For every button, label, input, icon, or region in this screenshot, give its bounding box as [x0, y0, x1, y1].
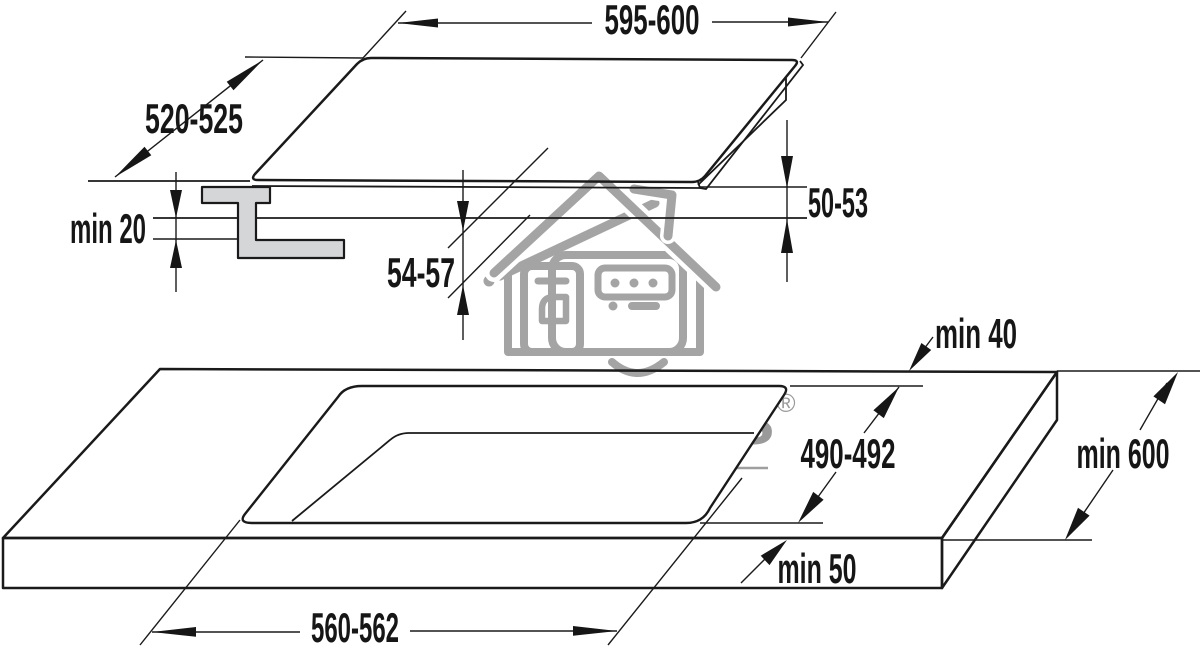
dim-label-cutout-width: 560-562: [311, 604, 399, 651]
dim-clearance-below: min 20: [70, 172, 182, 292]
hob-glass-top: [253, 58, 797, 182]
dim-cutout-to-back-edge: min 40: [909, 310, 1017, 371]
dim-cutout-to-front-edge: min 50: [741, 540, 857, 592]
dim-label-cutout-depth: 490-492: [801, 430, 896, 477]
oven-knob-2: [630, 279, 639, 288]
dim-hob-width: 595-600: [363, 0, 836, 58]
oven-knob-1: [611, 279, 620, 288]
dim-label-cutout-to-front: min 50: [778, 545, 857, 592]
worktop-cutout: [243, 386, 786, 523]
oven-dot: [609, 302, 618, 311]
dim-hob-height-below-worktop: 50-53: [781, 120, 868, 282]
dim-label-cutout-to-back: min 40: [935, 310, 1017, 357]
dim-label-clearance-below: min 20: [70, 205, 146, 252]
dim-label-hob-height-total: 54-57: [387, 249, 455, 296]
dim-label-hob-height-below: 50-53: [808, 179, 868, 226]
hob-section: 595-600 520-525 min 20 54-57: [70, 0, 868, 340]
mounting-bracket: [202, 187, 344, 258]
dim-label-worktop-min-depth: min 600: [1077, 430, 1170, 477]
house-logo-icon: [484, 176, 717, 373]
dim-hob-depth: 520-525: [115, 57, 363, 177]
worktop-section: 560-562 min 40 490-492 min 600: [3, 310, 1200, 651]
dim-label-hob-depth: 520-525: [145, 95, 243, 142]
oven-knob-3: [649, 279, 658, 288]
worktop-right-face: [942, 372, 1057, 588]
dim-label-hob-width: 595-600: [605, 0, 700, 43]
dim-worktop-min-depth: min 600: [1065, 372, 1178, 540]
dim-cutout-depth: 490-492: [798, 387, 899, 523]
installation-diagram: Mart Maks ® ONLINE STORE 595-600: [0, 0, 1200, 652]
